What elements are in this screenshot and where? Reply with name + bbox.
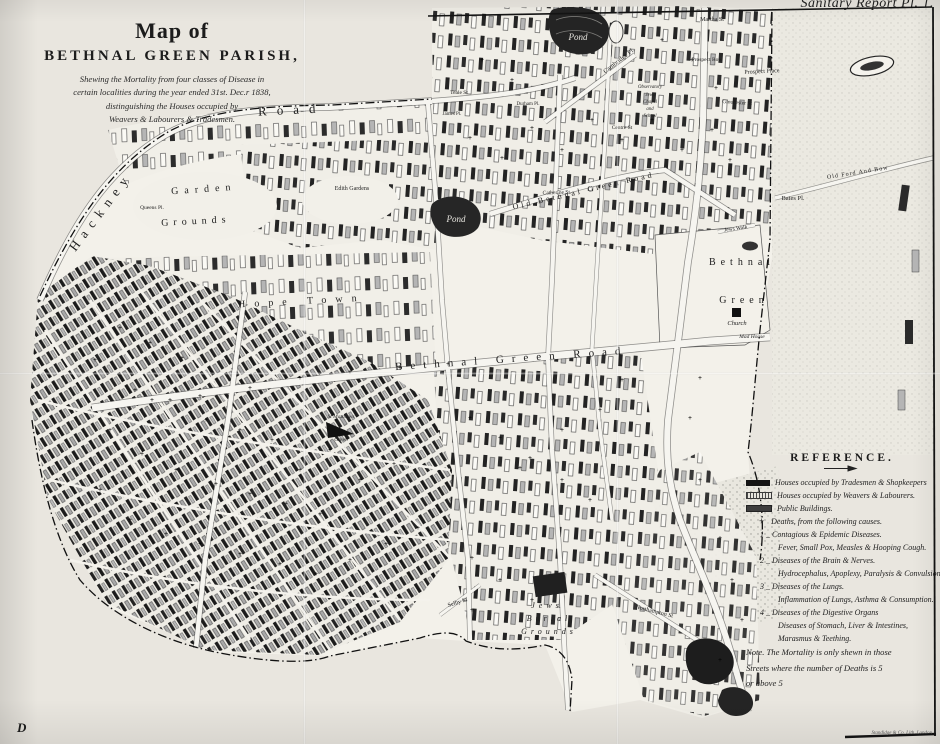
map-title-line1: Map of [32,18,312,44]
death-cross-marker: + [270,436,274,444]
dark-ground-patch [533,572,568,597]
map-label: Edith Gardens [335,186,370,192]
death-cross-marker: + [480,56,484,64]
reference-row-plus: +Deaths, from the following causes. [746,515,938,528]
reference-row-label: 2 _ Diseases of the Brain & Nerves. [760,554,875,567]
reference-row-label: 4 _ Diseases of the Digestive Organs [760,606,878,619]
reference-row-swatch: Houses occupied by Tradesmen & Shopkeepe… [746,476,938,489]
death-cross-marker: + [348,368,352,376]
death-cross-marker: + [620,376,624,384]
map-label: and [646,107,654,112]
map-label: Observatory [638,85,663,90]
east-fields [772,8,935,455]
death-cross-marker: + [416,524,420,532]
reference-ornament [822,465,862,472]
reference-row-swatch: Public Buildings. [746,502,938,515]
death-cross-marker: + [498,576,502,584]
reference-row-swatch: Houses occupied by Weavers & Labourers. [746,489,938,502]
death-cross-marker: + [198,392,202,400]
reference-row-cause: 4 _ Diseases of the Digestive Organs [760,606,938,619]
small-oval-enclosure [609,21,623,43]
death-cross-marker: + [148,339,152,347]
death-cross-marker: + [348,556,352,564]
reference-row-label: Fever, Small Pox, Measles & Hooping Coug… [778,541,926,554]
map-subtitle: Shewing the Mortality from four classes … [32,73,312,126]
map-label: Pond [446,214,466,224]
death-cross-marker: + [314,570,318,578]
death-cross-marker: + [560,146,564,154]
death-cross-marker: + [164,530,168,538]
map-label: Mad House [738,334,765,340]
death-cross-marker: + [468,134,472,142]
green-church-building [732,308,741,317]
death-cross-marker: + [718,656,722,664]
death-cross-marker: + [133,386,137,394]
death-cross-marker: + [328,446,332,454]
death-cross-marker: + [498,434,502,442]
death-cross-marker: + [598,406,602,414]
reference-row-cause: 3 _ Diseases of the Lungs. [760,580,938,593]
reference-row-detail: Inflammation of Lungs, Asthma & Consumpt… [778,593,938,606]
death-cross-marker: + [238,426,242,434]
reference-row-label: Houses occupied by Tradesmen & Shopkeepe… [775,476,927,489]
death-cross-marker: + [588,496,592,504]
death-cross-marker: + [590,116,594,124]
public-swatch [746,505,772,512]
death-cross-marker: + [93,356,97,364]
death-cross-marker: + [560,476,564,484]
death-cross-marker: + [248,384,252,392]
reference-row-label: Diseases of Stomach, Liver & Intestines, [778,619,908,632]
reference-row-label: Deaths, from the following causes. [771,515,882,528]
title-block: Map of BETHNAL GREEN PARISH, Shewing the… [32,18,312,126]
death-cross-marker: + [98,486,102,494]
reference-row-label: Public Buildings. [777,502,833,515]
map-label: Bethnal [709,257,775,268]
map-label: Prospect Row [692,57,723,63]
subtitle-line: Weavers & Labourers & Tradesmen. [32,113,312,126]
weavers-swatch [746,492,772,499]
death-cross-marker: + [140,450,144,458]
reference-row-label: Marasmus & Teething. [778,632,851,645]
death-cross-marker: + [500,154,504,162]
reference-row-label: or above 5 [746,676,783,692]
death-cross-marker: + [698,374,702,382]
reference-row-cause: 2 _ Diseases of the Brain & Nerves. [760,554,938,567]
death-cross-marker: + [518,464,522,472]
death-cross-marker: + [278,560,282,568]
death-cross-marker: + [660,36,664,44]
lithographer-imprint: Standidge & Co. Lith. London [871,731,932,736]
map-label: Bates Pl. [781,195,804,202]
map-label: Teale St [450,90,468,96]
reference-row-note: Note. The Mortality is only shewn in tho… [746,645,938,661]
death-cross-marker: + [468,414,472,422]
map-label: Jews [531,601,563,610]
subtitle-line: certain localities during the year ended… [32,86,312,99]
death-plus-symbol: + [759,515,764,528]
death-cross-marker: + [358,476,362,484]
death-cross-marker: + [214,480,218,488]
tradesmen-swatch [746,480,770,486]
reference-row-label: Houses occupied by Weavers & Labourers. [777,489,915,502]
map-label: Martha St [700,17,724,23]
plate-letter: D [17,720,26,736]
death-cross-marker: + [740,616,744,624]
reference-row-detail: Fever, Small Pox, Measles & Hooping Coug… [778,541,938,554]
death-cross-marker: + [118,324,122,332]
map-label: School [643,114,657,119]
map-label: Jews [645,93,654,98]
reference-row-note: or above 5 [746,676,938,692]
map-label: Pond [568,32,588,42]
death-cross-marker: + [204,416,208,424]
map-label: Grounds [521,627,577,636]
map-label: Durham Pl. [516,102,539,107]
death-cross-marker: + [248,490,252,498]
death-cross-marker: + [680,146,684,154]
death-cross-marker: + [174,466,178,474]
reference-row-label: Streets where the number of Deaths is 5 [746,661,883,677]
death-cross-marker: + [318,510,322,518]
map-label: Green [719,295,768,306]
subtitle-line: Shewing the Mortality from four classes … [32,73,312,86]
map-label: Burial [527,614,571,623]
map-label: Queens Pl. [140,205,164,211]
reference-row-label: 3 _ Diseases of the Lungs. [760,580,844,593]
death-cross-marker: + [528,454,532,462]
death-cross-marker: + [470,554,474,562]
death-cross-marker: + [108,426,112,434]
reference-row-label: Hydrocephalus, Apoplexy, Paralysis & Con… [778,567,940,580]
reference-row-note: Streets where the number of Deaths is 5 [746,661,938,677]
map-label: Chapel [643,100,658,105]
map-label: Centre St [612,125,633,131]
map-label: Catherine St. [543,189,573,196]
death-cross-marker: + [714,84,718,92]
death-cross-marker: + [392,460,396,468]
reference-row-cause: 1 _ Contagious & Epidemic Diseases. [760,528,938,541]
death-cross-marker: + [530,124,534,132]
map-label: James Pl. [443,112,462,117]
death-cross-marker: + [470,606,474,614]
death-cross-marker: + [718,534,722,542]
reference-row-label: Inflammation of Lungs, Asthma & Consumpt… [778,593,934,606]
death-cross-marker: + [180,354,184,362]
plate-title: Sanitary Report Pl. 1. [801,0,935,12]
death-cross-marker: + [298,466,302,474]
reference-row-label: 1 _ Contagious & Epidemic Diseases. [760,528,882,541]
subtitle-line: distinguishing the Houses occupied by [32,100,312,113]
reference-legend: REFERENCE. Houses occupied by Tradesmen … [746,452,938,692]
map-label: Green [334,437,348,443]
bethnal-green-open [655,225,770,348]
map-label: Church [727,320,746,327]
death-cross-marker: + [128,516,132,524]
death-cross-marker: + [238,550,242,558]
map-label: St Matthews [327,414,354,420]
reference-row-detail: Marasmus & Teething. [778,632,938,645]
death-cross-marker: + [620,136,624,144]
death-cross-marker: + [698,476,702,484]
death-cross-marker: + [168,396,172,404]
reference-row-detail: Diseases of Stomach, Liver & Intestines, [778,619,938,632]
death-cross-marker: + [284,500,288,508]
death-cross-marker: + [730,576,734,584]
death-cross-marker: + [210,370,214,378]
death-cross-marker: + [384,540,388,548]
reference-row-label: Note. The Mortality is only shewn in tho… [746,645,892,661]
death-cross-marker: + [710,126,714,134]
death-cross-marker: + [150,396,154,404]
death-cross-marker: + [688,414,692,422]
map-title-line2: BETHNAL GREEN PARISH, [32,48,312,65]
death-cross-marker: + [298,374,302,382]
map-plate: ++++++++++++++++++++++++++++++++++++++++… [0,0,940,744]
death-cross-marker: + [560,426,564,434]
green-pond [742,242,758,251]
reference-items: Houses occupied by Tradesmen & Shopkeepe… [746,476,938,692]
reference-row-detail: Hydrocephalus, Apoplexy, Paralysis & Con… [778,567,938,580]
death-cross-marker: + [728,156,732,164]
reference-heading: REFERENCE. [746,452,938,464]
death-cross-marker: + [510,76,514,84]
death-cross-marker: + [198,540,202,548]
